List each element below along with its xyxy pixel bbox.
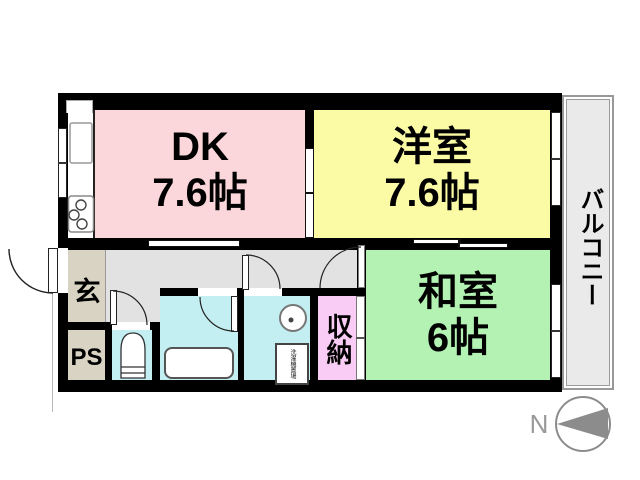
room-label-western: 洋室 7.6帖 xyxy=(314,112,550,227)
room-label-dk: DK 7.6帖 xyxy=(95,112,305,227)
entrance-door-leaf xyxy=(48,248,58,293)
storage-label: 収納 xyxy=(324,299,352,379)
toilet-doorway xyxy=(112,322,150,330)
dk-hall-sliding-door xyxy=(148,240,240,247)
kitchen-top-box xyxy=(66,100,93,113)
balcony-label: バルコニー xyxy=(576,156,602,338)
entrance-label: 玄 xyxy=(68,270,106,302)
compass-north-label: N xyxy=(526,409,552,439)
dk-name: DK xyxy=(171,124,229,170)
sliding-door-tick xyxy=(458,240,460,248)
floor-plan: 洗濯機置場 DK 7.6帖 洋室 7.6帖 和室 6帖 xyxy=(0,0,640,480)
dk-area: 7.6帖 xyxy=(152,170,248,216)
entrance-door-arc xyxy=(9,249,53,293)
western-name: 洋室 xyxy=(392,124,472,170)
entrance-doorway xyxy=(58,248,68,293)
sliding-door-tick xyxy=(305,192,314,194)
japanese-window-tick xyxy=(551,330,561,332)
western-window-tick xyxy=(551,158,561,160)
bath-doorway xyxy=(198,288,237,296)
pipe-space-label: PS xyxy=(68,344,105,372)
compass-circle xyxy=(556,397,610,451)
washroom-door-leaf xyxy=(242,255,249,290)
western-japanese-sliding-door-panel2 xyxy=(459,243,508,248)
closet-sliding-door-tick xyxy=(356,337,365,339)
exterior-corridor-line xyxy=(52,293,53,412)
toilet-door-leaf xyxy=(110,290,117,325)
kitchen-counter xyxy=(68,110,95,238)
washroom-doorway xyxy=(244,288,282,296)
kitchen-window-tick xyxy=(58,162,67,164)
washing-machine-space-label: 洗濯機置場 xyxy=(289,349,295,379)
toilet-room xyxy=(112,330,152,380)
japanese-area: 6帖 xyxy=(427,315,489,361)
washing-machine-space: 洗濯機置場 xyxy=(275,343,309,385)
western-area: 7.6帖 xyxy=(384,170,480,216)
japanese-name: 和室 xyxy=(418,269,498,315)
bath-door-leaf xyxy=(231,296,238,332)
bathtub xyxy=(164,347,234,379)
japanese-room-doorway xyxy=(358,245,365,288)
room-label-japanese: 和室 6帖 xyxy=(366,255,550,375)
western-japanese-sliding-door-panel1 xyxy=(413,239,461,244)
compass-north-icon xyxy=(557,408,608,439)
